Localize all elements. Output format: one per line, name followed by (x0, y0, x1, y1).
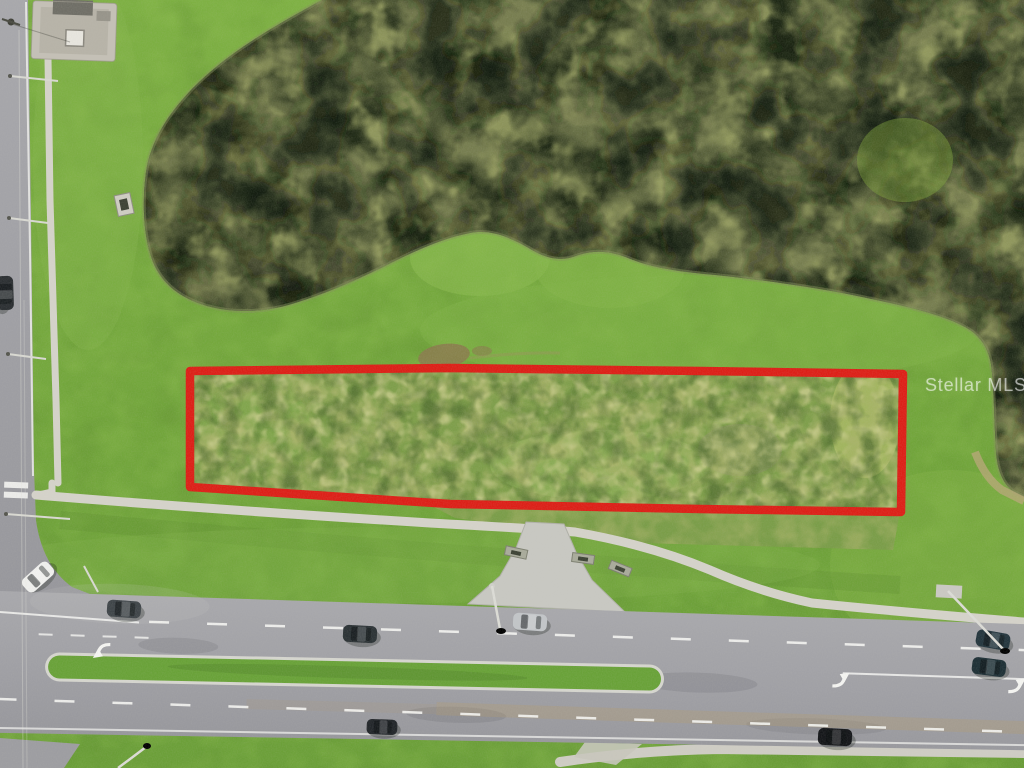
photo-grain (0, 0, 1024, 768)
aerial-photo-listing: Stellar MLS (0, 0, 1024, 768)
watermark: Stellar MLS (925, 375, 1024, 396)
scene-svg (0, 0, 1024, 768)
